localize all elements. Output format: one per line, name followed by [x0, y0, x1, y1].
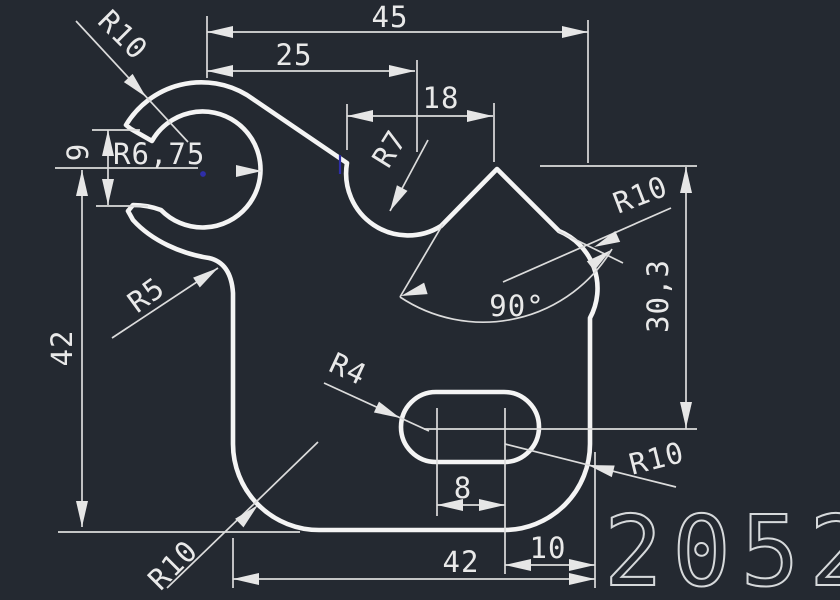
- dim-label-18: 18: [423, 81, 460, 115]
- radius-label-notch-left: R5: [121, 270, 171, 319]
- dim-label-8: 8: [454, 471, 472, 505]
- leader-r7: R7: [365, 124, 428, 214]
- arrowhead-icon: [347, 110, 373, 122]
- dim-label-9: 9: [61, 143, 95, 161]
- dim-label-42-left: 42: [45, 330, 79, 367]
- arrowhead-icon: [389, 65, 415, 77]
- arrowhead-icon: [479, 499, 505, 511]
- dim-label-30-3: 30,3: [641, 259, 675, 333]
- dim-height-left: 42: [45, 168, 300, 532]
- radius-label-slot: R4: [324, 346, 372, 392]
- part-number-text: 2052: [604, 495, 840, 600]
- radius-label-hook-outer: R10: [91, 3, 154, 66]
- arrowhead-icon: [374, 402, 403, 424]
- arrowhead-icon: [569, 559, 595, 571]
- arrowhead-icon: [207, 65, 233, 77]
- dim-label-25: 25: [276, 38, 313, 72]
- arrowhead-icon: [505, 559, 531, 571]
- arrowhead-icon: [102, 179, 114, 205]
- dim-label-90: 90°: [489, 289, 544, 323]
- cad-drawing-canvas[interactable]: 45 25 18 9 42: [0, 0, 840, 600]
- dim-offset-right: 10: [505, 452, 595, 588]
- radius-label-corner-bottom-right: R10: [626, 435, 688, 481]
- leader-r5: R5: [112, 263, 221, 338]
- arrowhead-icon: [76, 170, 88, 196]
- arrowhead-icon: [207, 26, 233, 38]
- arrowhead-icon: [680, 167, 692, 193]
- dim-label-42-bottom: 42: [443, 545, 480, 579]
- leader-r6-75: R6,75: [113, 137, 262, 177]
- radius-label-hook-inner: R6,75: [113, 137, 205, 171]
- center-point-marker: [201, 172, 206, 177]
- arrowhead-icon: [193, 263, 221, 287]
- leader-r10-bottom-left: R10: [141, 442, 318, 597]
- cad-viewport[interactable]: 45 25 18 9 42: [0, 0, 840, 600]
- arrowhead-icon: [76, 501, 88, 527]
- radius-label-valley: R7: [365, 124, 413, 173]
- dim-label-45: 45: [372, 0, 409, 34]
- arrowhead-icon: [385, 185, 408, 214]
- arrowhead-icon: [467, 110, 493, 122]
- arrowhead-icon: [562, 26, 588, 38]
- leader-r4: R4: [324, 346, 429, 431]
- leader-r10-bottom-right: R10: [505, 435, 688, 487]
- arrowhead-icon: [587, 459, 615, 477]
- radius-label-corner-bottom-left: R10: [141, 533, 204, 596]
- dim-angle-v: 90°: [399, 224, 623, 323]
- arrowhead-icon: [680, 402, 692, 428]
- dim-label-10: 10: [530, 531, 567, 565]
- arrowhead-icon: [233, 573, 259, 585]
- arrowhead-icon: [569, 573, 595, 585]
- radius-label-shoulder-right: R10: [608, 169, 672, 221]
